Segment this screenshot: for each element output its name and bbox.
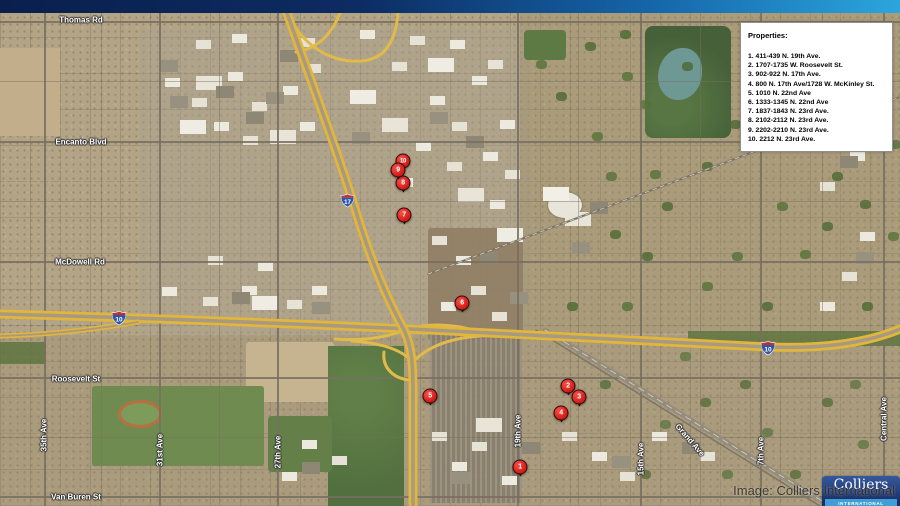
property-marker-9: 9 (391, 163, 406, 178)
street-label-7th-ave: 7th Ave (757, 437, 766, 465)
minor-road (700, 13, 701, 506)
street-label-35th-ave: 35th Ave (40, 419, 49, 452)
school-fields (92, 386, 264, 466)
coliseum-building (548, 192, 582, 218)
top-gradient-bar (0, 0, 900, 13)
minor-road (578, 13, 579, 506)
road-15th-ave (640, 13, 642, 506)
road-31st-ave (159, 13, 161, 506)
property-marker-4: 4 (554, 406, 569, 421)
minor-road (0, 201, 900, 202)
road-roosevelt (0, 377, 900, 379)
property-marker-1: 1 (513, 460, 528, 475)
image-credit: Image: Colliers International (733, 483, 895, 498)
legend-item: 1. 411-439 N. 19th Ave. (748, 52, 890, 61)
street-label-thomas-rd: Thomas Rd (59, 16, 103, 25)
park-southwest (328, 346, 404, 506)
street-label-31st-ave: 31st Ave (156, 434, 165, 466)
legend-item: 8. 2102-2112 N. 23rd Ave. (748, 116, 890, 125)
rail-yard (430, 335, 522, 503)
legend-item: 4. 800 N. 17th Ave/1728 W. McKinley St. (748, 80, 890, 89)
legend-item: 3. 902-922 N. 17th Ave. (748, 70, 890, 79)
small-park (524, 30, 566, 60)
road-27th-ave (277, 13, 279, 506)
property-marker-7: 7 (397, 208, 412, 223)
dirt-yard (428, 228, 523, 340)
legend-item: 5. 1010 N. 22nd Ave (748, 89, 890, 98)
street-label-19th-ave: 19th Ave (514, 415, 523, 448)
i17-shield-icon: 17 (340, 193, 355, 208)
properties-legend: Properties: 1. 411-439 N. 19th Ave.2. 17… (740, 22, 893, 152)
svg-text:10: 10 (764, 347, 772, 354)
vacant-lot-2 (0, 48, 60, 136)
legend-title: Properties: (748, 31, 890, 40)
colliers-logo-band: INTERNATIONAL (825, 499, 897, 506)
minor-road (219, 13, 220, 506)
tree-row (688, 331, 900, 346)
street-label-roosevelt-st: Roosevelt St (52, 375, 100, 384)
street-label-encanto-blvd: Encanto Blvd (55, 138, 106, 147)
i10-shield-icon-2: 10 (760, 340, 776, 356)
property-marker-5: 5 (423, 389, 438, 404)
colliers-logo-subtitle: INTERNATIONAL (838, 501, 884, 506)
svg-text:10: 10 (115, 317, 123, 324)
screenshot: 17 10 10 Thomas RdEncanto BlvdMcDowell R… (0, 0, 900, 506)
legend-item: 6. 1333-1345 N. 22nd Ave (748, 98, 890, 107)
svg-text:17: 17 (344, 199, 351, 206)
running-track (118, 400, 162, 428)
street-label-van-buren-st: Van Buren St (51, 493, 101, 502)
property-marker-6: 6 (455, 296, 470, 311)
i10-shield-icon: 10 (111, 310, 127, 326)
legend-item: 9. 2202-2210 N. 23rd Ave. (748, 126, 890, 135)
street-label-central-ave: Central Ave (880, 397, 889, 441)
legend-item: 10. 2212 N. 23rd Ave. (748, 135, 890, 144)
street-label-15th-ave: 15th Ave (637, 443, 646, 476)
street-label-mcdowell-rd: McDowell Rd (55, 258, 105, 267)
road-mcdowell (0, 261, 900, 263)
legend-list: 1. 411-439 N. 19th Ave.2. 1707-1735 W. R… (748, 52, 890, 144)
legend-item: 2. 1707-1735 W. Roosevelt St. (748, 61, 890, 70)
legend-item: 7. 1837-1843 N. 23rd Ave. (748, 107, 890, 116)
green-strip (0, 342, 46, 364)
property-marker-3: 3 (572, 390, 587, 405)
street-label-27th-ave: 27th Ave (274, 436, 283, 469)
